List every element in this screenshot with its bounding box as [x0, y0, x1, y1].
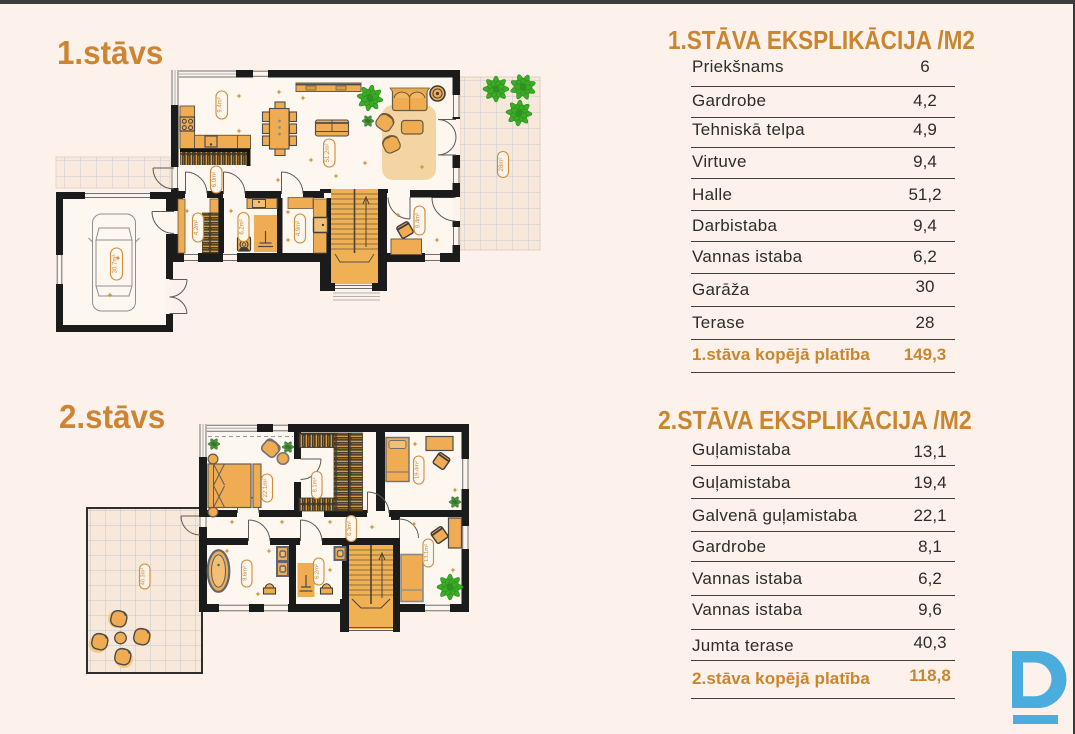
svg-text:22.1m²: 22.1m² [263, 479, 269, 498]
svg-text:6.3m²: 6.3m² [347, 521, 353, 536]
svg-text:9.4m²: 9.4m² [218, 97, 224, 112]
svg-text:6.2m²: 6.2m² [315, 564, 321, 579]
svg-text:4.9m²: 4.9m² [296, 221, 302, 236]
svg-text:13.1m²: 13.1m² [424, 544, 430, 562]
svg-text:4.2m²: 4.2m² [194, 220, 200, 235]
svg-text:6.0m²: 6.0m² [212, 172, 218, 187]
svg-text:6.2m²: 6.2m² [240, 219, 246, 234]
svg-text:9.4m²: 9.4m² [416, 213, 422, 228]
svg-text:28m²: 28m² [499, 158, 505, 172]
svg-text:19.4m²: 19.4m² [415, 461, 421, 479]
svg-text:40.3m²: 40.3m² [141, 568, 147, 586]
svg-text:8.1m²: 8.1m² [313, 478, 319, 493]
svg-text:51.2m²: 51.2m² [325, 144, 331, 163]
svg-text:9.6m²: 9.6m² [243, 566, 249, 581]
